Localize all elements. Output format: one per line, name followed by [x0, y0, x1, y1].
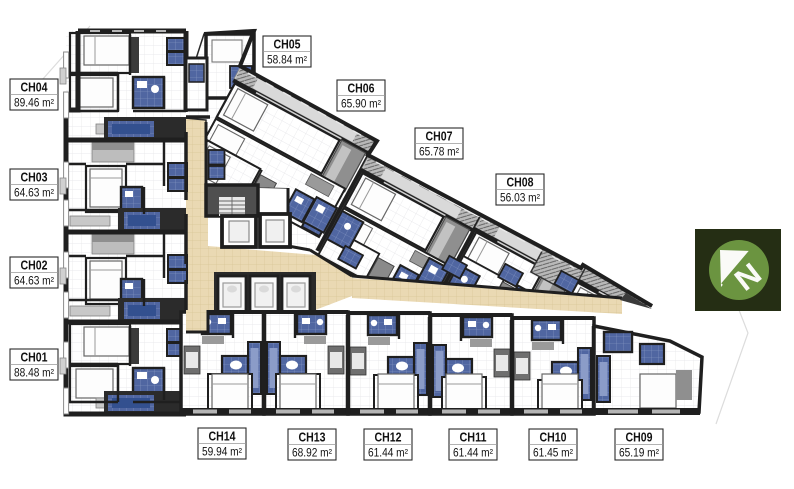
svg-text:56.03 m²: 56.03 m²: [500, 193, 540, 205]
svg-text:CH04: CH04: [21, 81, 48, 95]
svg-text:58.84 m²: 58.84 m²: [267, 55, 307, 67]
svg-text:CH05: CH05: [274, 38, 301, 52]
svg-text:CH06: CH06: [348, 82, 375, 96]
svg-text:CH08: CH08: [507, 176, 534, 190]
svg-text:CH14: CH14: [209, 430, 236, 444]
svg-text:61.44 m²: 61.44 m²: [453, 448, 493, 460]
svg-text:61.45 m²: 61.45 m²: [533, 448, 573, 460]
svg-text:88.48 m²: 88.48 m²: [14, 368, 54, 380]
svg-text:CH03: CH03: [21, 171, 48, 185]
svg-text:65.19 m²: 65.19 m²: [619, 448, 659, 460]
svg-text:68.92 m²: 68.92 m²: [292, 448, 332, 460]
svg-text:65.78 m²: 65.78 m²: [419, 147, 459, 159]
svg-text:CH13: CH13: [299, 431, 326, 445]
svg-text:64.63 m²: 64.63 m²: [14, 188, 54, 200]
svg-text:65.90 m²: 65.90 m²: [341, 99, 381, 111]
svg-text:59.94 m²: 59.94 m²: [202, 447, 242, 459]
svg-text:CH12: CH12: [375, 431, 402, 445]
svg-text:CH09: CH09: [626, 431, 653, 445]
svg-text:CH10: CH10: [540, 431, 567, 445]
svg-text:CH07: CH07: [426, 130, 453, 144]
svg-text:61.44 m²: 61.44 m²: [368, 448, 408, 460]
svg-text:89.46 m²: 89.46 m²: [14, 98, 54, 110]
svg-text:CH11: CH11: [460, 431, 487, 445]
svg-text:CH01: CH01: [21, 351, 48, 365]
svg-text:64.63 m²: 64.63 m²: [14, 276, 54, 288]
svg-text:CH02: CH02: [21, 259, 48, 273]
